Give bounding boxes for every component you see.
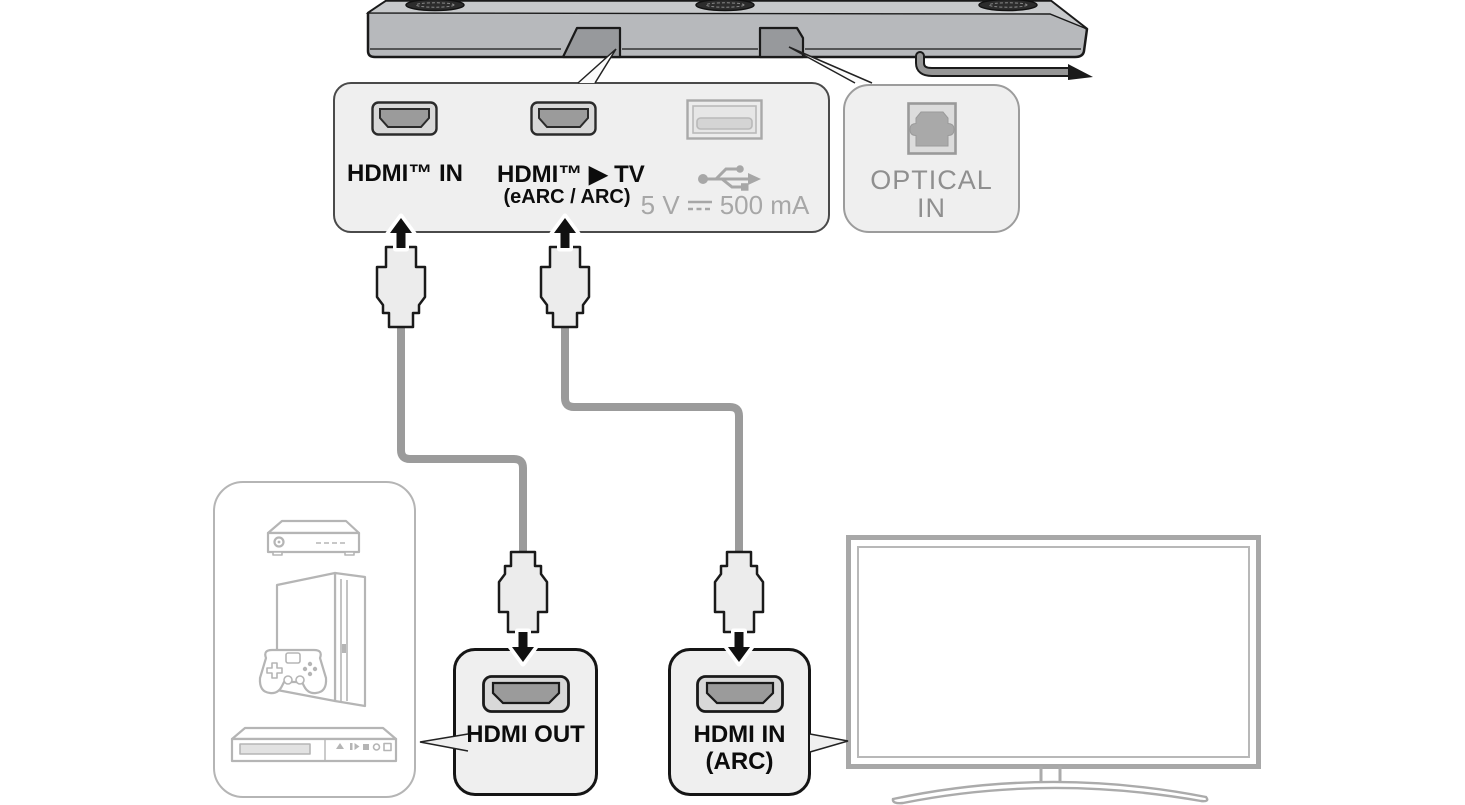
tv-illustration — [846, 535, 1261, 769]
hdmi-in-arc-label-line1: HDMI IN — [671, 721, 808, 748]
hdmi-out-panel: HDMI OUT — [453, 648, 598, 796]
power-cable — [920, 56, 1093, 80]
soundbar-feet — [406, 0, 1037, 11]
hdmi-in-arc-label-line2: (ARC) — [671, 748, 808, 775]
hdmi-in-port-label: HDMI™ IN — [345, 160, 465, 188]
usb-rating: 5 V 500 mA — [635, 190, 815, 221]
source-devices-box — [213, 481, 416, 798]
usb-rating-prefix: 5 V — [641, 190, 680, 221]
hdmi-plug-down-left — [499, 552, 547, 632]
dc-voltage-icon — [687, 199, 713, 212]
hdmi-plug-down-right — [715, 552, 763, 632]
callout-recess-to-ports-panel — [578, 49, 616, 83]
hdmi-in-arc-panel: HDMI IN (ARC) — [668, 648, 811, 796]
connection-diagram: HDMI™ IN HDMI™ ▶ TV (eARC / ARC) 5 V 500… — [0, 0, 1465, 805]
hdmi-tv-port-label: HDMI™ ▶ TV — [497, 160, 637, 189]
soundbar-ports-panel: HDMI™ IN HDMI™ ▶ TV (eARC / ARC) 5 V 500… — [333, 82, 830, 233]
soundbar-illustration — [368, 0, 1087, 57]
hdmi-port-icon — [371, 101, 438, 136]
tv-stand — [893, 766, 1207, 803]
usb-rating-suffix: 500 mA — [720, 190, 810, 221]
tv-screen — [857, 546, 1250, 758]
hdmi-plug-up-left — [377, 247, 425, 327]
callout-tv-to-hdmi-in-arc — [810, 734, 848, 752]
optical-label-line1: OPTICAL — [845, 166, 1018, 194]
hdmi-cable-left — [401, 326, 523, 554]
optical-port-icon — [907, 102, 957, 155]
hdmi-port-icon — [530, 101, 597, 136]
callout-recess-to-optical-panel — [789, 47, 872, 83]
usb-trident-icon — [696, 158, 762, 192]
hdmi-tv-port-sublabel: (eARC / ARC) — [497, 186, 637, 209]
hdmi-cable-right — [565, 326, 739, 554]
optical-panel: OPTICAL IN — [843, 84, 1020, 233]
hdmi-port-icon — [696, 675, 784, 713]
usb-port-icon — [686, 99, 763, 140]
soundbar-port-recess — [563, 28, 620, 57]
soundbar-port-recess — [760, 28, 803, 57]
hdmi-out-label: HDMI OUT — [456, 721, 595, 748]
hdmi-port-icon — [482, 675, 570, 713]
optical-label-line2: IN — [845, 194, 1018, 222]
hdmi-plug-up-right — [541, 247, 589, 327]
